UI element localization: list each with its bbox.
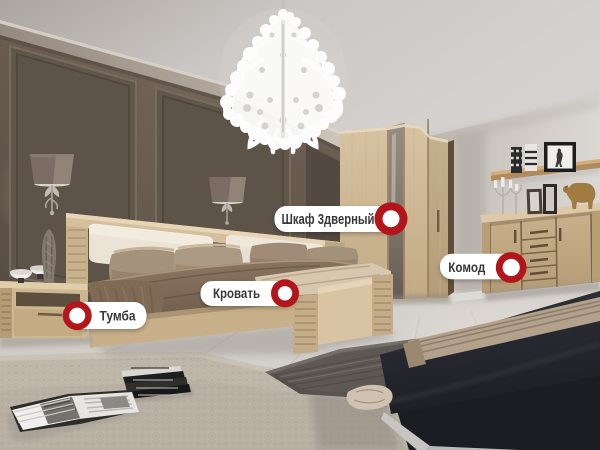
svg-text:Тумба: Тумба [100,309,136,325]
svg-text:Шкаф 3дверный: Шкаф 3дверный [282,212,375,228]
svg-text:Комод: Комод [448,260,485,276]
svg-text:Кровать: Кровать [213,286,260,302]
